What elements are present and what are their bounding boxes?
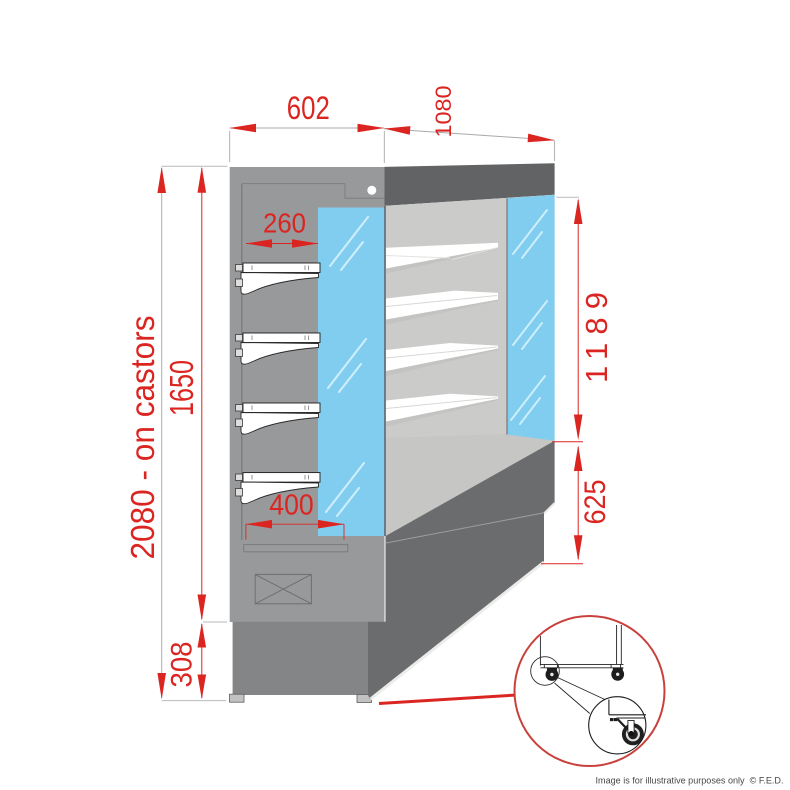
svg-text:2080 - on castors: 2080 - on castors [124, 316, 161, 560]
svg-text:625: 625 [579, 480, 612, 525]
svg-text:602: 602 [287, 90, 330, 126]
svg-text:308: 308 [166, 642, 199, 688]
svg-text:400: 400 [269, 490, 314, 522]
svg-text:1650: 1650 [163, 360, 200, 416]
svg-text:260: 260 [263, 208, 306, 239]
svg-text:1080: 1080 [431, 86, 456, 138]
svg-text:Image is for illustrative purp: Image is for illustrative purposes only … [596, 776, 784, 786]
